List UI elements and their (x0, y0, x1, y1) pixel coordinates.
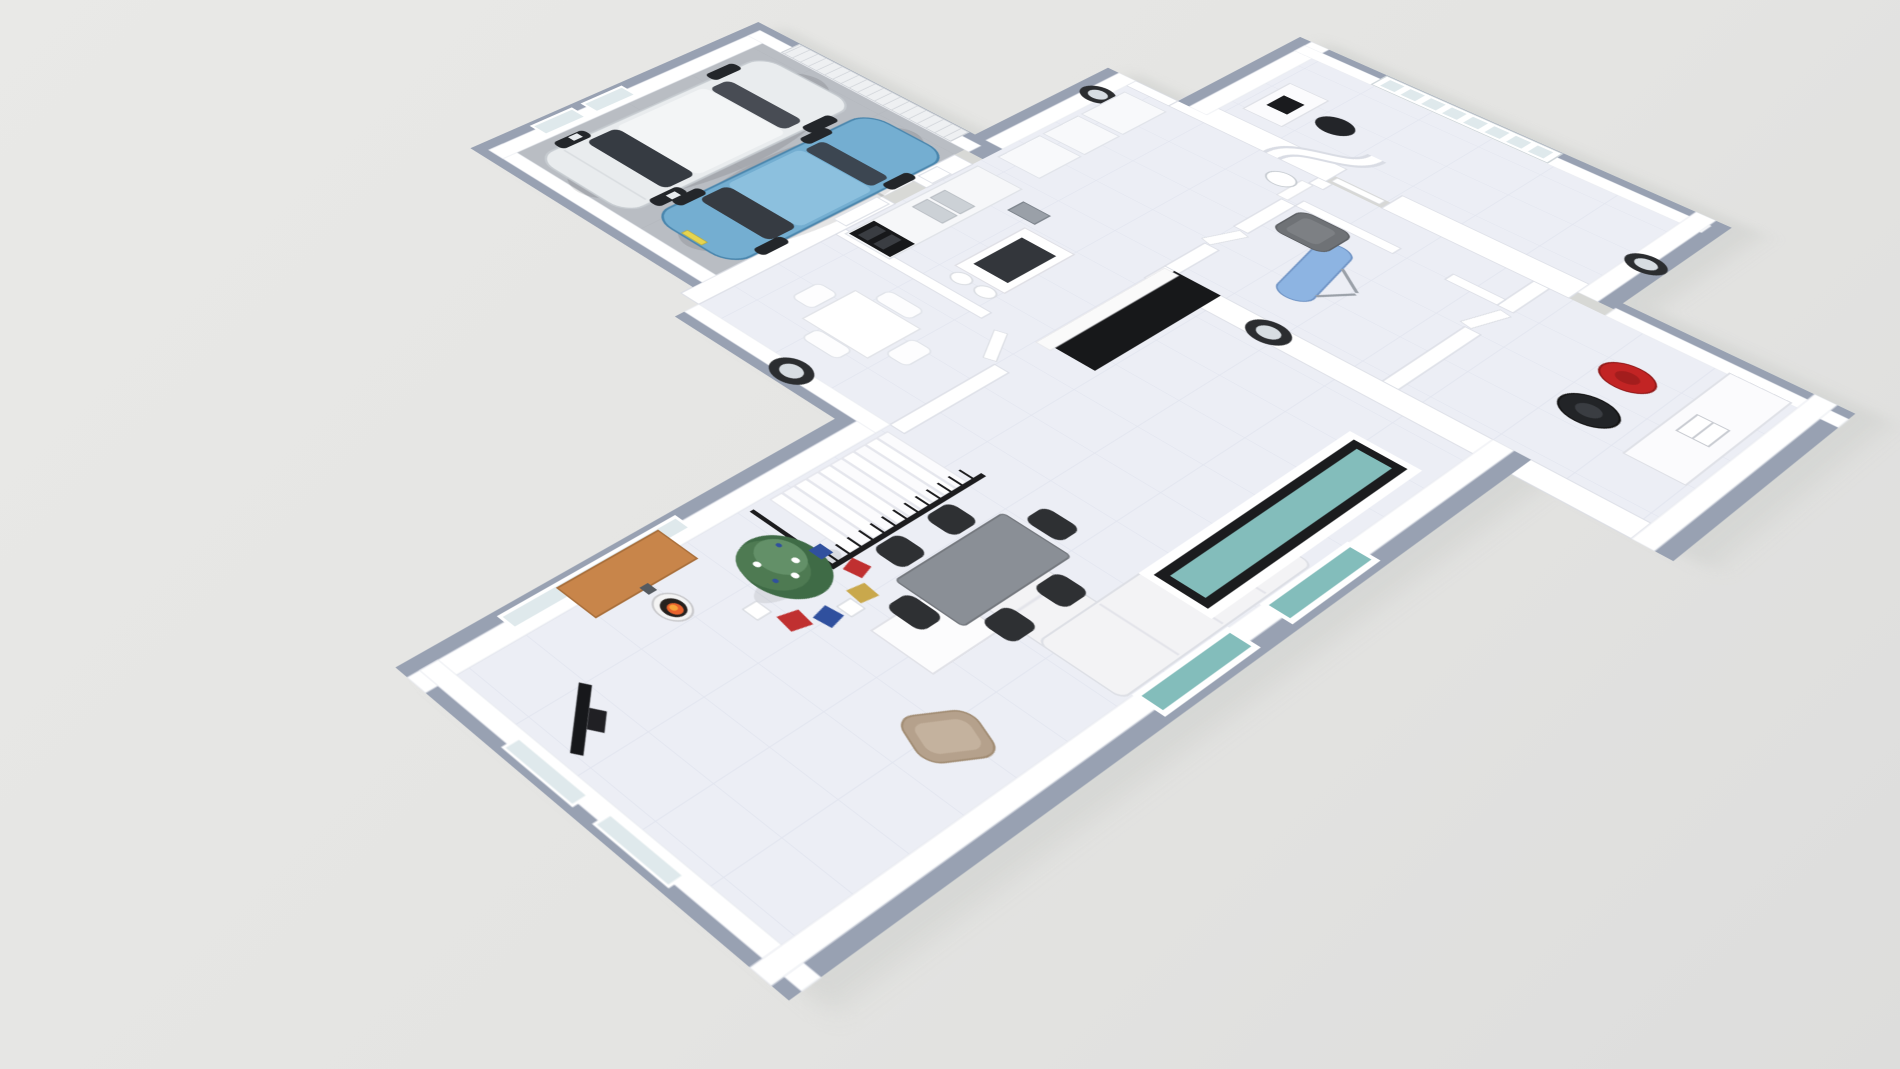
floor-plan-3d-render (0, 0, 1900, 1069)
floor-plan-canvas (0, 0, 1900, 1069)
floor-plan-stage (0, 0, 1900, 1069)
